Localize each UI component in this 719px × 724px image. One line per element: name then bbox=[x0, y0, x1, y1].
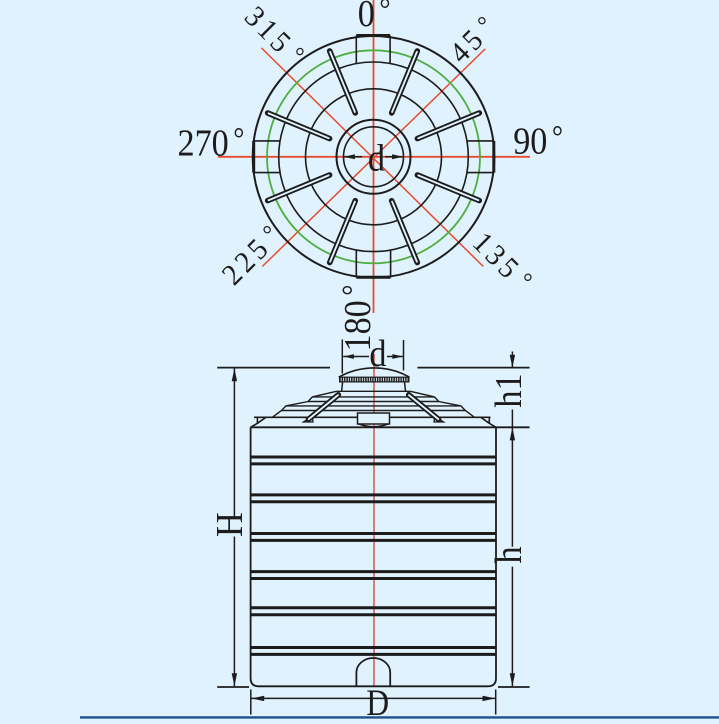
svg-text:h1: h1 bbox=[487, 373, 529, 407]
svg-text:h: h bbox=[487, 546, 529, 563]
svg-text:d: d bbox=[369, 332, 386, 374]
svg-text:D: D bbox=[366, 683, 389, 719]
svg-text:H: H bbox=[208, 512, 250, 537]
svg-text:d: d bbox=[368, 137, 385, 179]
